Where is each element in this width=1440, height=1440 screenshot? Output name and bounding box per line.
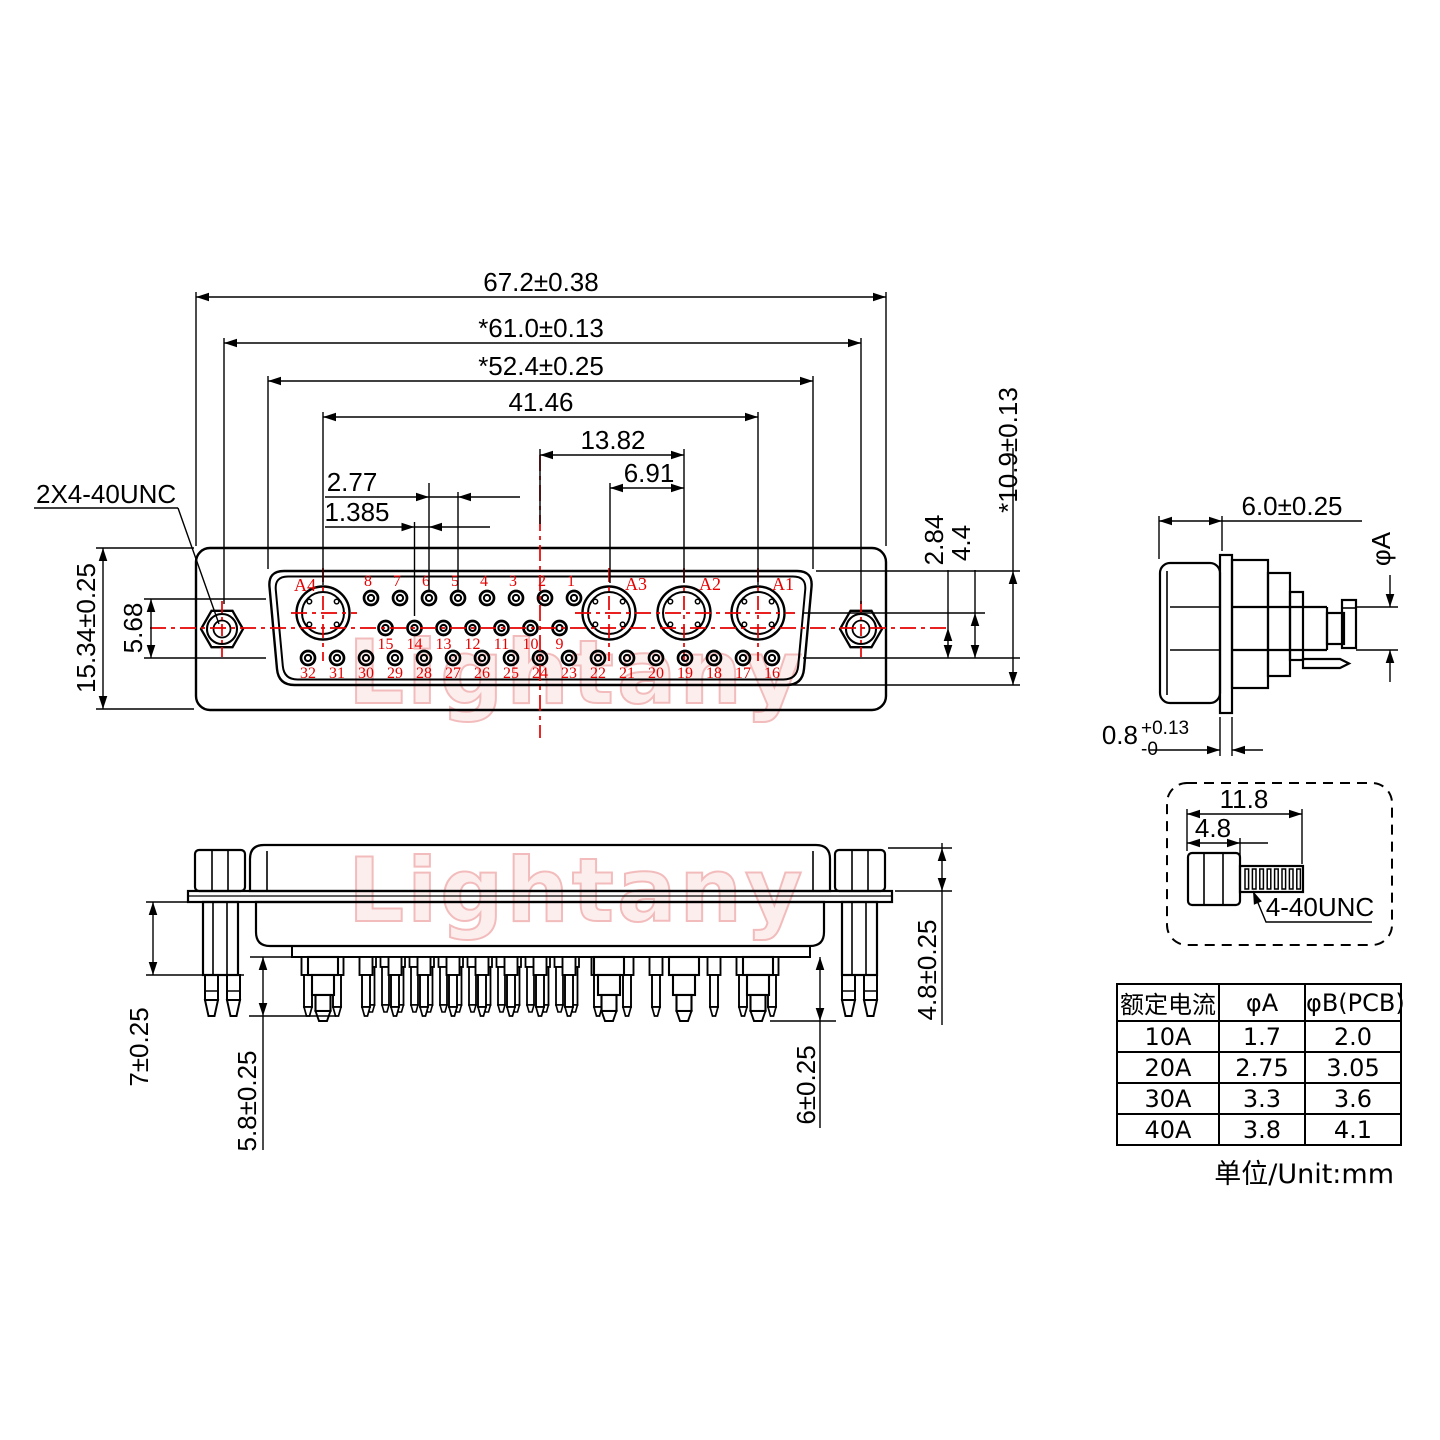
pin-label: 16 <box>764 665 780 682</box>
dim-center-drop: 4.4 <box>946 525 976 561</box>
bottom-left-screw-body <box>203 902 238 975</box>
pcb-pin <box>563 957 576 975</box>
signal-pin <box>567 591 581 605</box>
dim-flange-tol-plus: +0.13 <box>1141 718 1189 739</box>
pin-label: 17 <box>735 665 751 682</box>
signal-pin <box>301 651 315 665</box>
table-cell: 3.6 <box>1305 1083 1401 1114</box>
dim-row-step: 2.84 <box>919 515 949 566</box>
pcb-pin <box>534 957 547 975</box>
current-rating-table: 额定电流 φA φB(PCB) 10A1.72.020A2.753.0530A3… <box>1116 983 1402 1146</box>
coax-pcb-pin <box>594 957 624 975</box>
pin-label: 26 <box>474 665 490 682</box>
table-row: 10A1.72.0 <box>1117 1021 1401 1052</box>
coax-pcb-pin <box>743 957 773 975</box>
coax-label: A1 <box>772 574 794 594</box>
table-cell: 4.1 <box>1305 1114 1401 1145</box>
pin-label: 18 <box>706 665 722 682</box>
pin-label: 25 <box>503 665 519 682</box>
signal-pin <box>509 591 523 605</box>
pin-label: 31 <box>329 665 345 682</box>
screw-head <box>1188 853 1240 905</box>
pin-label: 4 <box>480 573 488 590</box>
pin-label: 11 <box>494 636 509 653</box>
pin-label: 14 <box>407 636 423 653</box>
table-cell: 3.8 <box>1219 1114 1305 1145</box>
pin-label: 22 <box>590 665 606 682</box>
pcb-pin <box>389 957 402 975</box>
pcb-pin <box>505 957 518 975</box>
table-cell: 10A <box>1117 1021 1219 1052</box>
dim-flange-thickness: 0.8 <box>1102 720 1138 750</box>
bottom-pin-base-strip <box>292 946 810 957</box>
front-thread-label: 2X4-40UNC <box>36 479 176 509</box>
bottom-view-pins <box>302 957 779 1021</box>
pcb-pin <box>650 957 663 975</box>
bottom-right-nut <box>835 850 885 891</box>
coax-pcb-pin <box>308 957 338 975</box>
bottom-left-nut <box>195 850 245 891</box>
pin-label: 9 <box>556 636 564 653</box>
pin-label: 10 <box>523 636 539 653</box>
coax-label: A4 <box>294 575 316 595</box>
table-cell: 2.0 <box>1305 1021 1401 1052</box>
pcb-pin <box>476 957 489 975</box>
pin-label: 7 <box>393 573 401 590</box>
pin-label: 27 <box>445 665 461 682</box>
pin-label: 30 <box>358 665 374 682</box>
pin-label: 12 <box>465 636 481 653</box>
table-cell: 20A <box>1117 1052 1219 1083</box>
table-cell: 3.05 <box>1305 1052 1401 1083</box>
dim-screw-head: 4.8 <box>1195 813 1231 843</box>
signal-pin <box>451 591 465 605</box>
dim-mount-span: *61.0±0.13 <box>478 313 604 343</box>
dim-pin-length: 5.8±0.25 <box>232 1050 262 1151</box>
pin-label: 20 <box>648 665 664 682</box>
pcb-pin <box>447 957 460 975</box>
side-flange <box>1220 555 1232 713</box>
board-lock-leg <box>864 975 877 1000</box>
dim-center-to-a2: 13.82 <box>580 425 645 455</box>
pin-label: 1 <box>567 573 575 590</box>
dim-a3-a2: 6.91 <box>624 458 675 488</box>
signal-pin <box>330 651 344 665</box>
pcb-pin <box>708 957 721 975</box>
side-bottom-pin <box>1303 659 1349 668</box>
signal-pin <box>480 591 494 605</box>
technical-drawing: Lightany Lightany A4A3A2A1 8765432115141… <box>0 0 1440 1440</box>
pin-label: 15 <box>378 636 394 653</box>
side-view <box>1160 555 1356 713</box>
dim-half-pitch: 1.385 <box>324 497 389 527</box>
dim-coax-span: 41.46 <box>508 387 573 417</box>
dim-depth: 6.0±0.25 <box>1241 491 1342 521</box>
dim-standoff-length: 7±0.25 <box>124 1007 154 1086</box>
drawing-sheet: Lightany Lightany A4A3A2A1 8765432115141… <box>0 0 1440 1440</box>
side-shell-body <box>1160 563 1220 703</box>
dim-coax-pin-length: 6±0.25 <box>791 1045 821 1124</box>
pin-label: 19 <box>677 665 693 682</box>
board-lock-leg <box>227 975 240 1000</box>
unit-note: 单位/Unit:mm <box>1116 1152 1394 1191</box>
pcb-pin <box>418 957 431 975</box>
pcb-pin <box>360 957 373 975</box>
bottom-right-screw-body <box>842 902 877 975</box>
pin-label: 23 <box>561 665 577 682</box>
table-cell: 40A <box>1117 1114 1219 1145</box>
dim-shell-height-bottom: 4.8±0.25 <box>912 919 942 1020</box>
dim-pitch: 2.77 <box>327 467 378 497</box>
table-header-rated-current: 额定电流 <box>1117 984 1219 1021</box>
coax-pcb-pin <box>669 957 699 975</box>
table-row: 40A3.84.1 <box>1117 1114 1401 1145</box>
dim-pin-dia: φA <box>1366 531 1396 566</box>
coax-label: A2 <box>699 574 721 594</box>
table-header-phi-a: φA <box>1219 984 1305 1021</box>
side-body-step2 <box>1268 573 1290 676</box>
dim-overall-height: 15.34±0.25 <box>71 563 101 693</box>
dim-shell-height-front: *10.9±0.13 <box>993 387 1023 513</box>
board-lock-leg <box>205 975 218 1000</box>
table-cell: 3.3 <box>1219 1083 1305 1114</box>
board-lock-leg <box>842 975 855 1000</box>
dim-overall-width: 67.2±0.38 <box>483 267 598 297</box>
table-cell: 1.7 <box>1219 1021 1305 1052</box>
dim-flange-tol-minus: -0 <box>1141 739 1158 760</box>
signal-pin <box>422 591 436 605</box>
pin-label: 3 <box>509 573 517 590</box>
signal-pin <box>393 591 407 605</box>
pin-label: 13 <box>436 636 452 653</box>
dim-shell-width: *52.4±0.25 <box>478 351 604 381</box>
table-row: 30A3.33.6 <box>1117 1083 1401 1114</box>
screw-thread-lines <box>1245 869 1300 889</box>
signal-pin <box>364 591 378 605</box>
pin-label: 8 <box>364 573 372 590</box>
table-cell: 2.75 <box>1219 1052 1305 1083</box>
table-header-phi-b: φB(PCB) <box>1305 984 1401 1021</box>
pin-label: 29 <box>387 665 403 682</box>
table-cell: 30A <box>1117 1083 1219 1114</box>
dim-row-span: 5.68 <box>118 603 148 654</box>
table-row: 20A2.753.05 <box>1117 1052 1401 1083</box>
screw-thread-label: 4-40UNC <box>1266 892 1374 922</box>
pin-label: 28 <box>416 665 432 682</box>
pin-label: 21 <box>619 665 635 682</box>
side-body-step1 <box>1232 560 1268 688</box>
coax-label: A3 <box>625 574 647 594</box>
pin-label: 32 <box>300 665 316 682</box>
dim-screw-total: 11.8 <box>1220 784 1269 814</box>
